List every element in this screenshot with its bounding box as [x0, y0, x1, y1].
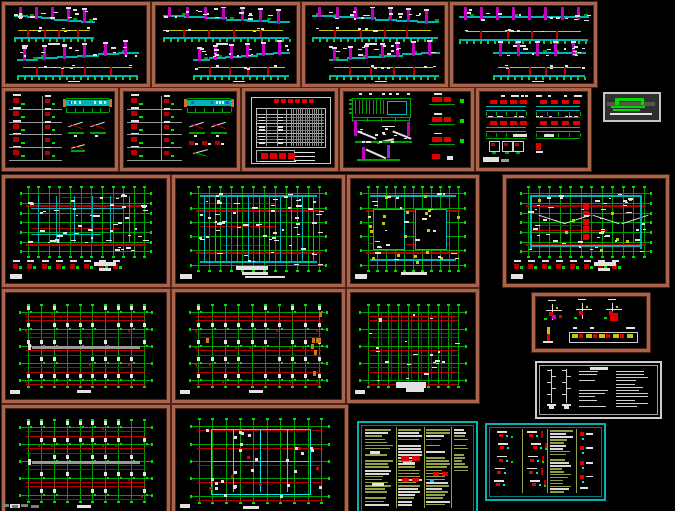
- column-glyph: [82, 379, 84, 381]
- grid-tick: [211, 502, 214, 504]
- scale-bar: [375, 81, 387, 83]
- text-speck: [123, 47, 128, 49]
- red-beam: [196, 320, 321, 321]
- beam-frame: [530, 245, 641, 247]
- anno-speck: [217, 202, 222, 204]
- glyph-line: [497, 431, 507, 433]
- anno-speck: [529, 249, 532, 251]
- text-speck: [75, 50, 79, 52]
- sheet-roof-plan-content: [352, 180, 474, 282]
- note-line: [616, 393, 648, 394]
- grid-h: [21, 427, 152, 428]
- anno-speck: [599, 232, 604, 234]
- speck: [404, 138, 407, 140]
- red-post: [27, 30, 29, 38]
- column-glyph: [214, 328, 216, 330]
- ground-tick: [184, 39, 186, 42]
- grid-tick: [91, 304, 94, 306]
- anno-speck: [436, 363, 440, 365]
- grid-tick: [304, 304, 307, 306]
- rebar-block: [490, 121, 497, 125]
- grid-tick: [430, 270, 433, 272]
- beam-v: [259, 196, 260, 261]
- column-glyph: [53, 489, 56, 493]
- column-glyph: [66, 438, 69, 442]
- text-speck: [30, 16, 35, 18]
- text-speck: [125, 55, 127, 57]
- text-speck: [257, 28, 260, 30]
- yellow-mark: [372, 257, 375, 260]
- grid-tick: [325, 235, 327, 238]
- beam-v: [313, 196, 314, 261]
- grid-tick: [104, 386, 107, 388]
- column-glyph: [43, 426, 45, 428]
- grid-tick: [80, 256, 83, 258]
- detail-glyph: [52, 155, 55, 157]
- grid-tick: [464, 207, 466, 210]
- red-beam: [196, 350, 321, 351]
- text-speck: [41, 52, 45, 54]
- column-glyph: [117, 357, 120, 361]
- grid-tick: [211, 418, 214, 420]
- glyph-line: [527, 468, 537, 470]
- note-line: [365, 463, 387, 465]
- ground-tick: [193, 77, 195, 80]
- column-glyph: [224, 323, 227, 327]
- column-cap: [388, 7, 393, 9]
- beam-frame: [530, 195, 532, 249]
- detail-glyph: [42, 264, 47, 269]
- rebar-block: [444, 137, 451, 142]
- grid-tick: [307, 270, 310, 272]
- anno-speck: [643, 229, 646, 231]
- text-speck: [164, 16, 168, 18]
- detail-glyph: [556, 264, 561, 269]
- column-glyph: [294, 311, 296, 313]
- anno-speck: [413, 354, 418, 356]
- anno-speck: [128, 235, 132, 237]
- text-speck: [371, 65, 374, 67]
- column-bar: [544, 7, 547, 20]
- beam-h: [211, 461, 309, 462]
- beam-v: [92, 196, 93, 243]
- grid-tick: [189, 345, 191, 348]
- detail-glyph: [590, 266, 593, 269]
- glyph-red: [500, 446, 504, 449]
- title-smudge: [245, 276, 285, 278]
- grid-tick: [190, 221, 192, 224]
- note-line: [616, 384, 635, 385]
- red-beam: [196, 372, 321, 373]
- anno-speck: [48, 242, 50, 244]
- red-beam: [26, 448, 147, 449]
- column-glyph: [143, 340, 146, 344]
- column-glyph: [30, 426, 32, 428]
- glyph-red: [580, 432, 584, 436]
- detail-glyph: [618, 266, 621, 269]
- column-glyph: [94, 328, 96, 330]
- text-speck: [505, 30, 508, 32]
- text-speck: [175, 16, 177, 18]
- text-speck: [511, 30, 514, 32]
- note-line: [616, 371, 644, 372]
- grid-tick: [27, 186, 30, 188]
- column-glyph: [197, 306, 200, 310]
- ground-tick: [542, 77, 544, 80]
- grid-tick: [520, 250, 522, 253]
- grid-tick: [19, 362, 21, 365]
- red-post: [77, 30, 79, 38]
- column-glyph: [240, 345, 242, 347]
- red-post: [384, 30, 386, 38]
- note-line: [426, 494, 445, 496]
- red-beam: [26, 453, 147, 454]
- glyph-line: [531, 443, 541, 445]
- red-post: [233, 30, 235, 38]
- red-beam: [26, 384, 147, 385]
- orange-mark: [319, 312, 322, 317]
- text-speck: [251, 54, 253, 56]
- detail-glyph: [542, 264, 547, 269]
- rebar-block: [551, 121, 558, 125]
- anno-block: [211, 478, 214, 481]
- wall-stub: [567, 388, 571, 389]
- note-line: [365, 491, 387, 493]
- note-line: [365, 504, 388, 506]
- beam-speck: [79, 101, 81, 104]
- beam-v: [74, 196, 75, 243]
- yellow-mark: [416, 261, 419, 264]
- detail-glyph: [90, 266, 93, 269]
- grid-tick: [122, 186, 125, 188]
- column-glyph: [133, 477, 135, 479]
- column-bar: [277, 11, 280, 24]
- column-glyph: [94, 494, 96, 496]
- beam-speck: [94, 101, 96, 104]
- anno-speck: [71, 200, 75, 202]
- beam-end: [63, 99, 66, 107]
- grid-tick: [328, 443, 330, 446]
- detail-glyph: [119, 266, 122, 269]
- grid-tick: [66, 386, 69, 388]
- detail-glyph: [164, 121, 170, 123]
- anno-speck: [546, 234, 550, 236]
- note-line: [398, 485, 420, 487]
- detail-glyph: [131, 137, 137, 142]
- detail-glyph: [164, 112, 169, 116]
- grid-tick: [198, 502, 201, 504]
- grid-tick: [151, 426, 153, 429]
- speck: [548, 300, 556, 302]
- anno-speck: [375, 241, 380, 243]
- grid-tick: [328, 425, 330, 428]
- beam-line: [536, 110, 580, 111]
- beam-speck: [100, 101, 102, 104]
- grid-tick: [464, 264, 466, 267]
- col-separator: [522, 429, 523, 493]
- grid-tick: [190, 235, 192, 238]
- note-line: [550, 468, 562, 470]
- glyph-cyan: [536, 472, 538, 474]
- detail-glyph: [131, 133, 139, 135]
- note-line: [365, 466, 388, 468]
- grid-tick: [387, 304, 390, 306]
- ground-tick: [577, 77, 579, 80]
- anno-speck: [578, 241, 583, 243]
- note-line: [616, 400, 634, 401]
- gray-bar: [32, 346, 141, 349]
- column-bar: [362, 147, 365, 159]
- red-beam: [26, 320, 147, 321]
- glyph: [460, 99, 464, 103]
- note-line: [426, 432, 450, 434]
- ground-tick: [108, 77, 110, 80]
- ground-tick: [347, 39, 349, 42]
- red-beam: [26, 244, 147, 246]
- text-speck: [72, 65, 75, 67]
- ground-tick: [21, 39, 23, 42]
- grid-tick: [580, 256, 583, 258]
- note-line: [454, 457, 466, 459]
- detail-glyph: [33, 266, 36, 269]
- beam-line: [193, 59, 210, 61]
- text-speck: [507, 55, 510, 57]
- yellow-mark: [370, 230, 373, 233]
- text-speck: [329, 12, 333, 14]
- speck: [569, 116, 572, 118]
- column-glyph: [107, 311, 109, 313]
- note-line: [426, 429, 450, 431]
- grid-tick: [387, 386, 390, 388]
- sheet-stair-details-content: [345, 93, 469, 166]
- label-smudge: [513, 134, 527, 137]
- column-bar: [262, 44, 265, 57]
- beam-speck: [104, 101, 106, 104]
- grid-tick: [394, 186, 397, 188]
- detail-glyph: [70, 264, 75, 269]
- anno-speck: [533, 228, 538, 230]
- column-glyph: [53, 455, 56, 459]
- text-speck: [244, 67, 247, 69]
- anno-speck: [54, 210, 59, 212]
- anno-speck: [406, 378, 409, 380]
- ground-tick: [329, 77, 331, 80]
- ground-tick: [336, 77, 338, 80]
- grid-tick: [252, 502, 255, 504]
- yellow-mark: [382, 222, 385, 225]
- stair-tread: [362, 100, 363, 114]
- text-speck: [336, 51, 340, 53]
- grid-tick: [385, 186, 388, 188]
- ground-tick: [371, 77, 373, 80]
- anno-block: [311, 449, 314, 452]
- ground-tick: [212, 39, 214, 42]
- column-bar: [241, 9, 244, 22]
- legend-red-box: [288, 153, 295, 159]
- ground-tick: [249, 77, 251, 80]
- anno-speck: [208, 217, 211, 219]
- text-speck: [19, 14, 23, 16]
- anno-block: [251, 469, 254, 472]
- text-speck: [248, 18, 252, 20]
- column-bar: [528, 7, 531, 20]
- red-detail: [583, 234, 589, 240]
- grid-tick: [328, 495, 330, 498]
- strip-block: [606, 334, 610, 337]
- detail-glyph: [13, 98, 19, 103]
- note-line: [398, 482, 416, 484]
- sheet-roof-framing-plan-content: [508, 180, 664, 282]
- column-glyph: [117, 306, 120, 310]
- stirrup-mark: [515, 143, 519, 146]
- table-title-glyph: [274, 99, 279, 103]
- ground-tick: [70, 39, 72, 42]
- column-glyph: [211, 323, 214, 327]
- column-bar: [63, 46, 66, 59]
- anno-speck: [256, 224, 262, 226]
- column-glyph: [237, 374, 240, 378]
- grid-tick: [27, 256, 30, 258]
- red-post: [545, 67, 547, 75]
- grid-h: [361, 312, 465, 313]
- grid-tick: [548, 256, 551, 258]
- anno-speck: [272, 237, 276, 239]
- yellow-mark: [457, 216, 460, 219]
- grid-tick: [40, 386, 43, 388]
- sheet-column-plan-1-content: [7, 294, 165, 398]
- beam-line: [226, 19, 248, 21]
- column-glyph: [40, 472, 43, 476]
- grid-tick: [101, 186, 104, 188]
- beam-line: [257, 53, 274, 55]
- anno-speck: [396, 197, 399, 199]
- grid-h: [21, 312, 152, 313]
- sheet-foundation-plan: [347, 289, 479, 403]
- grid-h: [22, 203, 151, 204]
- table-text: [278, 117, 283, 119]
- red-detail: [209, 487, 212, 490]
- strip-block: [572, 334, 578, 337]
- title-smudge: [243, 506, 259, 509]
- column-glyph: [102, 445, 104, 447]
- grid-tick: [293, 502, 296, 504]
- grid-tick: [464, 235, 466, 238]
- speck: [359, 93, 362, 95]
- ground-tick: [434, 77, 436, 80]
- title-smudge: [77, 505, 91, 508]
- speck: [573, 327, 577, 329]
- column-glyph: [56, 311, 58, 313]
- column-cap: [498, 41, 503, 43]
- grid-tick: [150, 241, 152, 244]
- note-line: [365, 442, 387, 444]
- note-line: [550, 483, 563, 485]
- anno-speck: [368, 216, 372, 218]
- text-speck: [188, 29, 191, 31]
- beam-line: [118, 52, 139, 54]
- ground-tick: [242, 77, 244, 80]
- wall-stub: [547, 382, 551, 383]
- glyph-red: [432, 154, 440, 159]
- red-beam: [196, 316, 321, 317]
- ground-tick: [191, 39, 193, 42]
- beam-line: [273, 52, 290, 54]
- column-glyph: [146, 345, 148, 347]
- column-glyph: [94, 426, 96, 428]
- text-speck: [573, 51, 577, 53]
- detail-glyph: [195, 143, 198, 145]
- ground-tick: [270, 77, 272, 80]
- rebar-block: [444, 97, 451, 102]
- wall-stub: [552, 376, 556, 377]
- ground-tick: [38, 77, 40, 80]
- anno-speck: [200, 239, 205, 241]
- text-speck: [26, 45, 28, 47]
- column-glyph: [104, 306, 107, 310]
- red-beam: [26, 355, 147, 356]
- label-smudge: [544, 134, 554, 137]
- column-glyph: [304, 374, 307, 378]
- column-glyph: [267, 345, 269, 347]
- landing-line: [382, 126, 394, 128]
- grid-tick: [130, 501, 133, 503]
- glyph-line: [494, 480, 504, 482]
- grid-tick: [151, 311, 153, 314]
- column-glyph: [40, 421, 43, 425]
- detail-glyph: [164, 95, 170, 97]
- red-post: [110, 67, 112, 75]
- red-post: [360, 30, 362, 38]
- detail-yellow: [586, 306, 588, 308]
- speck: [514, 116, 517, 118]
- grid-v: [242, 188, 243, 269]
- anno-speck: [582, 209, 584, 211]
- sheet-general-notes-1: [535, 361, 662, 419]
- red-grid-h: [368, 372, 458, 373]
- grid-tick: [559, 186, 562, 188]
- anno-speck: [430, 354, 433, 356]
- glyph-cyan: [582, 438, 584, 440]
- rebar-block: [520, 100, 527, 104]
- grid-tick: [224, 304, 227, 306]
- anno-speck: [206, 236, 209, 238]
- red-detail: [583, 226, 589, 232]
- ground-tick: [413, 77, 415, 80]
- ground-tick: [375, 39, 377, 42]
- ground-tick: [221, 77, 223, 80]
- grid-tick: [237, 304, 240, 306]
- ground-tick: [319, 39, 321, 42]
- grid-tick: [457, 186, 460, 188]
- text-speck: [582, 48, 585, 50]
- glyph-green: [544, 485, 546, 487]
- text-speck: [582, 67, 585, 69]
- text-speck: [354, 18, 357, 20]
- anno-speck: [601, 209, 607, 211]
- wall-stub: [547, 370, 551, 371]
- grid-line: [9, 109, 62, 110]
- yellow-mark: [424, 195, 427, 198]
- sheet-longitudinal-section-1: [2, 2, 150, 87]
- cyan-mark: [430, 479, 434, 482]
- grid-h: [361, 363, 465, 364]
- anno-block: [234, 436, 237, 439]
- corner-mark: [180, 390, 190, 394]
- grid-tick: [20, 192, 22, 195]
- anno-speck: [385, 361, 389, 363]
- grid-tick: [293, 418, 296, 420]
- detail-glyph: [139, 142, 143, 144]
